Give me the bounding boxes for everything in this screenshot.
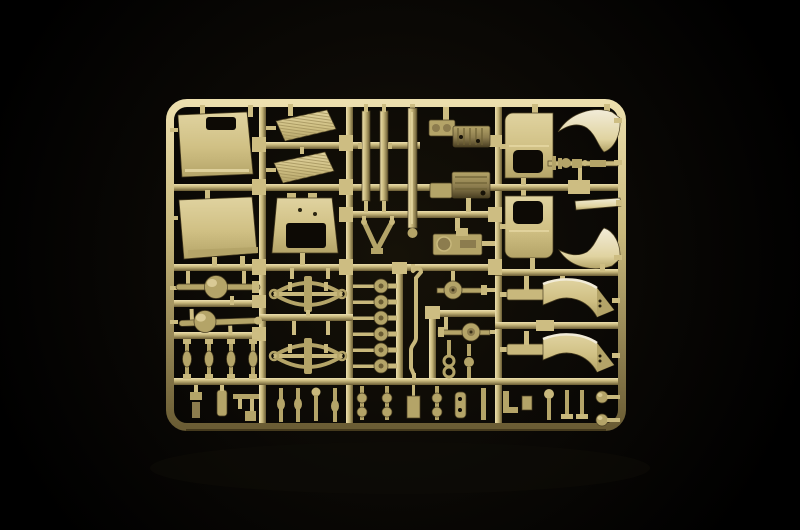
photo-stage	[0, 0, 800, 530]
gate	[500, 224, 506, 229]
runner-vertical-c	[396, 268, 403, 382]
spring-bolt	[304, 338, 312, 374]
part-small-rod	[481, 388, 486, 420]
drum-flange	[481, 285, 487, 295]
rail-ridge	[411, 112, 413, 224]
gate	[614, 255, 622, 260]
part-chassis-rail-long	[408, 104, 418, 238]
gate	[443, 107, 449, 121]
shaft-joint	[582, 160, 588, 166]
axle-flange	[252, 281, 259, 293]
gate	[364, 201, 368, 212]
engine-pulley	[443, 124, 451, 132]
firewall-opening	[286, 223, 326, 248]
gate	[500, 144, 506, 149]
part-small-block	[522, 396, 532, 410]
runner-h3	[346, 211, 502, 218]
gate	[266, 126, 276, 130]
gate	[326, 321, 330, 335]
gate	[382, 104, 386, 112]
gate	[306, 310, 310, 317]
gate	[290, 268, 294, 279]
runner-h2	[174, 184, 618, 191]
part-cab-roof-panel	[178, 105, 253, 177]
gate	[228, 326, 232, 335]
gearbox-hole	[481, 191, 486, 196]
gate	[490, 330, 495, 334]
sprue-photo	[0, 0, 800, 530]
shaft-fitting	[572, 159, 582, 168]
gate	[616, 200, 622, 206]
rivet-hole	[599, 360, 602, 363]
engine-hole	[476, 139, 480, 143]
gate	[521, 178, 526, 185]
engine-pulley	[432, 124, 440, 132]
gate	[288, 104, 293, 116]
door-window-opening	[513, 150, 543, 173]
gate	[614, 160, 622, 165]
firewall-hole	[313, 212, 317, 216]
rivet-hole	[599, 300, 602, 303]
frame-top-highlight	[186, 100, 606, 102]
gate	[614, 118, 622, 123]
gate	[600, 264, 605, 272]
runner-h4	[174, 264, 502, 271]
gate	[612, 353, 620, 358]
gate	[382, 201, 386, 212]
mudguard-bar	[507, 289, 544, 300]
drum-flange	[438, 327, 444, 337]
winch-block	[456, 228, 468, 236]
gate	[412, 373, 416, 380]
gate	[292, 321, 296, 335]
runner-h4r	[495, 269, 618, 276]
part-holed-bracket	[455, 392, 466, 418]
engine-hole	[459, 135, 463, 139]
spring-clamp	[288, 344, 292, 353]
runner-h8	[174, 378, 618, 385]
frame-bottom-shade	[186, 429, 606, 431]
mudguard-bar	[507, 344, 544, 355]
gate	[248, 105, 253, 117]
spring-bolt	[304, 276, 312, 312]
gate	[487, 288, 495, 292]
part-cab-door-1	[500, 104, 553, 185]
gate	[530, 258, 535, 270]
roof-recess	[206, 117, 236, 130]
rivet-hole	[599, 305, 602, 308]
gate	[266, 168, 276, 172]
door-crease	[509, 230, 549, 232]
rivet-hole	[599, 355, 602, 358]
spring-clamp	[324, 344, 328, 353]
floor-reflection	[150, 442, 650, 494]
housing-highlight	[207, 279, 217, 287]
spring-clamp	[324, 282, 328, 291]
rail-tab	[388, 143, 392, 149]
winch-drum	[437, 237, 451, 251]
a-frame-foot	[371, 248, 383, 254]
spring-clamp	[288, 282, 292, 291]
shaft-fitting	[552, 156, 556, 170]
gate	[326, 268, 330, 279]
panel-highlight	[185, 169, 249, 172]
shaft-joint	[561, 158, 571, 168]
door-window-opening	[513, 201, 543, 224]
gate	[364, 104, 368, 112]
gate	[212, 257, 217, 266]
gate	[524, 331, 529, 345]
gate	[578, 168, 582, 182]
gate	[524, 276, 529, 290]
gate	[240, 256, 245, 266]
firewall-hole	[298, 208, 302, 212]
gate	[444, 317, 448, 330]
gate	[242, 271, 246, 285]
differential-housing	[194, 310, 217, 333]
differential-housing	[205, 276, 228, 299]
winch-detail	[460, 240, 476, 248]
gate	[482, 241, 495, 246]
runner-vertical-e	[429, 313, 436, 382]
runner-h5	[174, 300, 262, 307]
gate	[230, 296, 234, 305]
rail-tab	[358, 143, 362, 149]
gate	[300, 253, 305, 265]
gate	[186, 271, 190, 285]
shaft-fitting	[590, 160, 606, 167]
rail-ball-joint	[408, 228, 418, 238]
runner-h6r	[495, 322, 618, 329]
gate	[466, 198, 471, 212]
gate	[612, 298, 620, 303]
gate	[300, 147, 304, 154]
door-crease	[509, 145, 549, 147]
